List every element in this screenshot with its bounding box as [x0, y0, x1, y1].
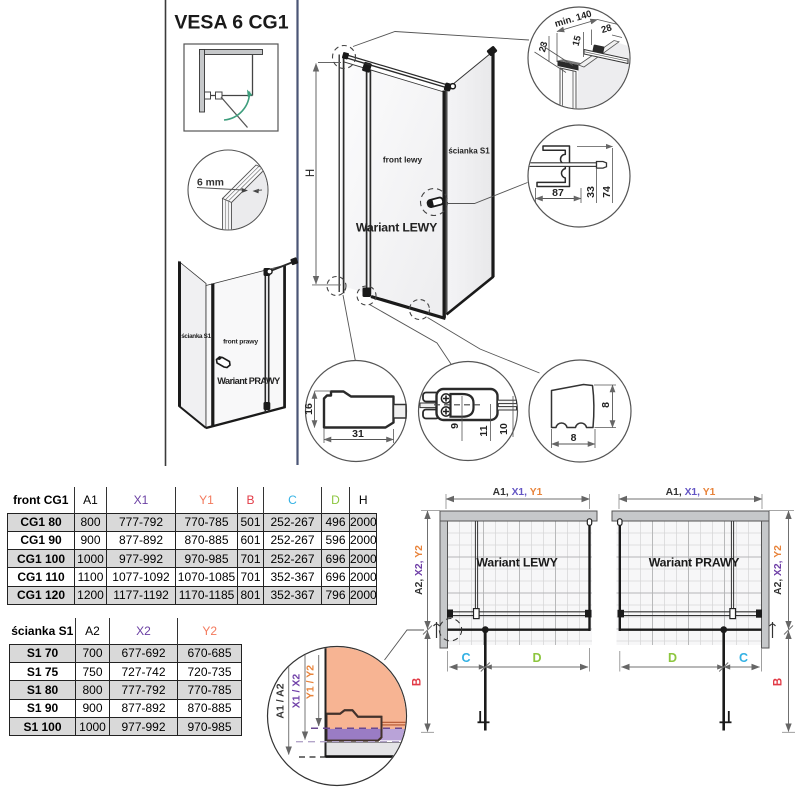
svg-text:16: 16: [303, 403, 315, 415]
svg-text:VESA 6 CG1: VESA 6 CG1: [174, 12, 288, 34]
svg-text:Wariant LEWY: Wariant LEWY: [356, 221, 437, 235]
svg-text:74: 74: [601, 186, 613, 198]
svg-text:H: H: [305, 169, 317, 177]
svg-text:C: C: [461, 651, 470, 665]
svg-text:31: 31: [352, 428, 364, 440]
svg-text:33: 33: [585, 186, 597, 198]
svg-text:Wariant PRAWY: Wariant PRAWY: [649, 556, 740, 570]
svg-text:B: B: [412, 678, 424, 686]
svg-text:A1 / A2: A1 / A2: [275, 683, 287, 718]
svg-text:A2, X2, Y2: A2, X2, Y2: [773, 545, 784, 595]
svg-text:11: 11: [478, 425, 490, 436]
svg-text:A1, X1, Y1: A1, X1, Y1: [666, 487, 716, 498]
svg-text:front lewy: front lewy: [383, 155, 423, 165]
svg-text:D: D: [668, 651, 677, 665]
svg-text:Wariant PRAWY: Wariant PRAWY: [217, 376, 280, 386]
svg-text:B: B: [773, 678, 785, 686]
svg-text:9: 9: [449, 423, 461, 429]
svg-text:A1, X1, Y1: A1, X1, Y1: [493, 487, 543, 498]
svg-text:ścianka S1: ścianka S1: [181, 333, 211, 340]
svg-text:X1 / X2: X1 / X2: [291, 674, 303, 709]
svg-text:ścianka S1: ścianka S1: [448, 147, 490, 156]
svg-text:10: 10: [498, 423, 510, 435]
svg-text:front prawy: front prawy: [223, 339, 258, 346]
svg-text:8: 8: [571, 432, 577, 444]
svg-text:C: C: [739, 651, 748, 665]
svg-text:8: 8: [600, 402, 612, 408]
svg-text:D: D: [532, 651, 541, 665]
svg-text:87: 87: [552, 187, 564, 199]
svg-text:A2, X2, Y2: A2, X2, Y2: [414, 545, 425, 595]
svg-text:Wariant LEWY: Wariant LEWY: [476, 556, 557, 570]
svg-text:Y1 / Y2: Y1 / Y2: [305, 665, 317, 699]
svg-text:6 mm: 6 mm: [197, 178, 224, 189]
